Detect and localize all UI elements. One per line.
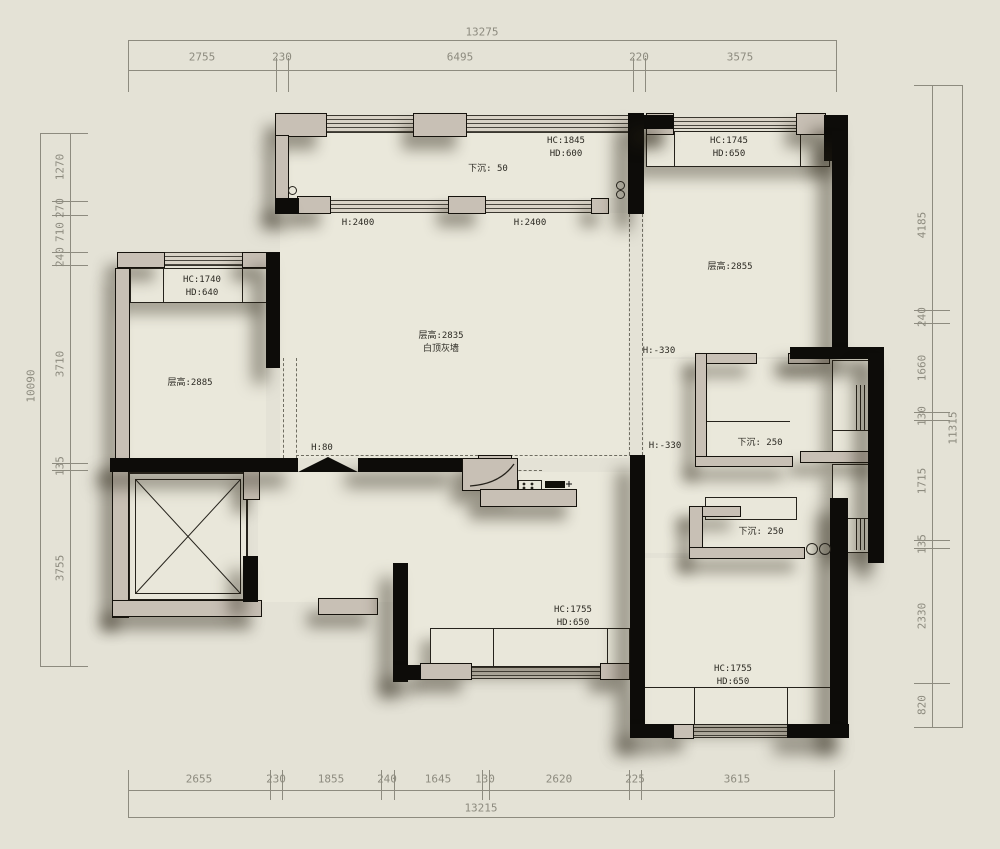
dim-label: 710 bbox=[55, 222, 66, 242]
dim-label: 130 bbox=[917, 406, 928, 426]
window-band bbox=[692, 727, 788, 738]
dim-label: 1660 bbox=[917, 355, 928, 382]
dim-line bbox=[914, 727, 963, 728]
dim-label: 820 bbox=[917, 695, 928, 715]
wall-segment bbox=[644, 115, 674, 129]
dim-line bbox=[128, 40, 129, 92]
trim-segment bbox=[297, 196, 331, 214]
dim-label: 3575 bbox=[727, 52, 754, 63]
wall-segment bbox=[393, 665, 421, 680]
dim-label: 230 bbox=[272, 52, 292, 63]
dim-label: 240 bbox=[55, 247, 66, 267]
wall-segment bbox=[243, 556, 258, 602]
dim-label: 225 bbox=[625, 774, 645, 785]
dim-label: 2620 bbox=[546, 774, 573, 785]
dim-label: 11315 bbox=[948, 411, 959, 444]
dim-label: 1645 bbox=[425, 774, 452, 785]
trim-segment bbox=[117, 252, 165, 268]
window-band bbox=[289, 200, 593, 213]
room-label-bath-level-2: H:-330 bbox=[649, 440, 682, 453]
room-label-entry-level: H:80 bbox=[311, 442, 333, 455]
hinge-circle bbox=[616, 190, 625, 199]
dim-line bbox=[70, 133, 71, 666]
trim-segment bbox=[112, 458, 129, 618]
dim-label: 2655 bbox=[186, 774, 213, 785]
wall-segment bbox=[787, 724, 849, 738]
dim-line bbox=[128, 40, 836, 41]
dim-line bbox=[40, 666, 88, 667]
trim-segment bbox=[689, 547, 805, 559]
dim-label: 13275 bbox=[465, 27, 498, 38]
divider-line bbox=[860, 385, 861, 430]
room-label-balcony-door-height-2: H:2400 bbox=[514, 217, 547, 230]
dim-label: 1270 bbox=[55, 154, 66, 181]
dim-line bbox=[40, 133, 41, 666]
trim-segment bbox=[115, 268, 130, 464]
trim-segment bbox=[672, 724, 694, 739]
dashed-ceiling-line bbox=[296, 358, 298, 458]
dim-label: 230 bbox=[266, 774, 286, 785]
trim-segment bbox=[695, 456, 793, 467]
hinge-circle bbox=[819, 543, 831, 555]
divider-line bbox=[163, 268, 164, 303]
dim-line bbox=[914, 683, 950, 684]
wall-segment bbox=[630, 724, 674, 738]
trim-segment bbox=[462, 458, 518, 491]
room-label-bedroom2-height: 层高:2855 bbox=[707, 261, 752, 274]
room-label-kitchen-window-spec: HC:1755 HD:650 bbox=[554, 604, 592, 630]
dim-label: 2755 bbox=[189, 52, 216, 63]
dim-line bbox=[128, 770, 129, 817]
dim-label: 1715 bbox=[917, 468, 928, 495]
trim-segment bbox=[275, 113, 327, 137]
trim-segment bbox=[242, 252, 268, 268]
floorplan-canvas: 2755230649522035751327526552301855240164… bbox=[0, 0, 1000, 849]
divider-line bbox=[242, 268, 243, 303]
divider-line bbox=[864, 518, 865, 550]
divider-line bbox=[694, 687, 695, 725]
dashed-ceiling-line bbox=[283, 358, 285, 458]
dim-line bbox=[834, 770, 835, 817]
divider-line bbox=[856, 518, 857, 550]
room-label-bedroom2-window-spec: HC:1745 HD:650 bbox=[710, 135, 748, 161]
wall-segment bbox=[630, 455, 645, 738]
dim-line bbox=[40, 133, 88, 134]
room-label-bath-sunken-1: 下沉: 250 bbox=[737, 437, 782, 450]
divider-line bbox=[707, 421, 790, 422]
hinge-circle bbox=[288, 186, 297, 195]
counter-appliance bbox=[545, 481, 565, 488]
room-label-balcony-sunken: 下沉: 50 bbox=[468, 163, 508, 176]
trim-segment bbox=[448, 196, 486, 214]
room-label-balcony-door-height-1: H:2400 bbox=[342, 217, 375, 230]
trim-segment bbox=[318, 598, 378, 615]
dim-label: 13215 bbox=[464, 803, 497, 814]
dim-label: 130 bbox=[475, 774, 495, 785]
elevator-shaft-inner bbox=[135, 479, 241, 594]
wall-segment bbox=[832, 131, 848, 357]
dim-line bbox=[914, 85, 963, 86]
room-label-living-height: 层高:2835 白顶灰墙 bbox=[418, 330, 463, 356]
wall-segment bbox=[358, 458, 462, 472]
wall-segment bbox=[266, 252, 280, 368]
window-bay-kitchen bbox=[430, 628, 630, 667]
room-label-bath-level-1: H:-330 bbox=[643, 345, 676, 358]
dashed-ceiling-line bbox=[296, 455, 642, 457]
dim-label: 6495 bbox=[447, 52, 474, 63]
window-bay-bedroom-bottomright bbox=[644, 687, 834, 725]
trim-segment bbox=[243, 470, 260, 500]
dim-label: 3710 bbox=[55, 351, 66, 378]
room-label-bath-sunken-2: 下沉: 250 bbox=[738, 526, 783, 539]
dim-label: 3615 bbox=[724, 774, 751, 785]
trim-segment bbox=[600, 663, 630, 680]
dim-label: 10090 bbox=[26, 369, 37, 402]
dim-label: 135 bbox=[55, 456, 66, 476]
divider-line bbox=[674, 131, 675, 167]
divider-line bbox=[864, 385, 865, 430]
trim-segment bbox=[591, 198, 609, 214]
dim-line bbox=[932, 85, 933, 727]
divider-line bbox=[800, 131, 801, 167]
room-label-balcony-window-spec: HC:1845 HD:600 bbox=[547, 135, 585, 161]
divider-line bbox=[493, 628, 494, 667]
window-band bbox=[672, 117, 798, 129]
dim-label: 240 bbox=[377, 774, 397, 785]
divider-line bbox=[787, 687, 788, 725]
dim-line bbox=[836, 40, 837, 92]
dashed-ceiling-line bbox=[642, 214, 644, 455]
wall-segment bbox=[275, 198, 299, 214]
trim-segment bbox=[695, 353, 707, 467]
room-label-room-left-window-spec: HC:1740 HD:640 bbox=[183, 274, 221, 300]
dim-line bbox=[962, 85, 963, 727]
dashed-ceiling-line bbox=[629, 214, 631, 455]
dim-line bbox=[128, 790, 834, 791]
window-band bbox=[470, 667, 601, 679]
trim-segment bbox=[112, 600, 262, 617]
dim-label: 1855 bbox=[318, 774, 345, 785]
wall-segment bbox=[868, 353, 884, 563]
dim-line bbox=[128, 817, 834, 818]
dim-label: 135 bbox=[917, 534, 928, 554]
room-label-bedroom3-window-spec: HC:1755 HD:650 bbox=[714, 663, 752, 689]
trim-segment bbox=[413, 113, 467, 137]
dim-label: 2330 bbox=[917, 603, 928, 630]
hinge-circle bbox=[616, 181, 625, 190]
divider-line bbox=[860, 518, 861, 550]
wall-segment bbox=[830, 498, 848, 738]
trim-segment bbox=[480, 489, 577, 507]
divider-line bbox=[856, 385, 857, 430]
trim-segment bbox=[796, 113, 826, 135]
dim-label: 4185 bbox=[917, 212, 928, 239]
room-label-room-left-height: 层高:2885 bbox=[167, 377, 212, 390]
plan-symbol bbox=[298, 457, 358, 472]
dim-label: 220 bbox=[629, 52, 649, 63]
hinge-circle bbox=[806, 543, 818, 555]
trim-segment bbox=[420, 663, 472, 680]
dim-label: 270 bbox=[55, 198, 66, 218]
window-band bbox=[163, 252, 243, 266]
divider-line bbox=[607, 628, 608, 667]
dim-label: 240 bbox=[917, 307, 928, 327]
dim-line bbox=[128, 70, 836, 71]
wall-segment bbox=[110, 458, 298, 472]
wall-segment bbox=[628, 113, 644, 214]
dim-label: 3755 bbox=[55, 555, 66, 582]
